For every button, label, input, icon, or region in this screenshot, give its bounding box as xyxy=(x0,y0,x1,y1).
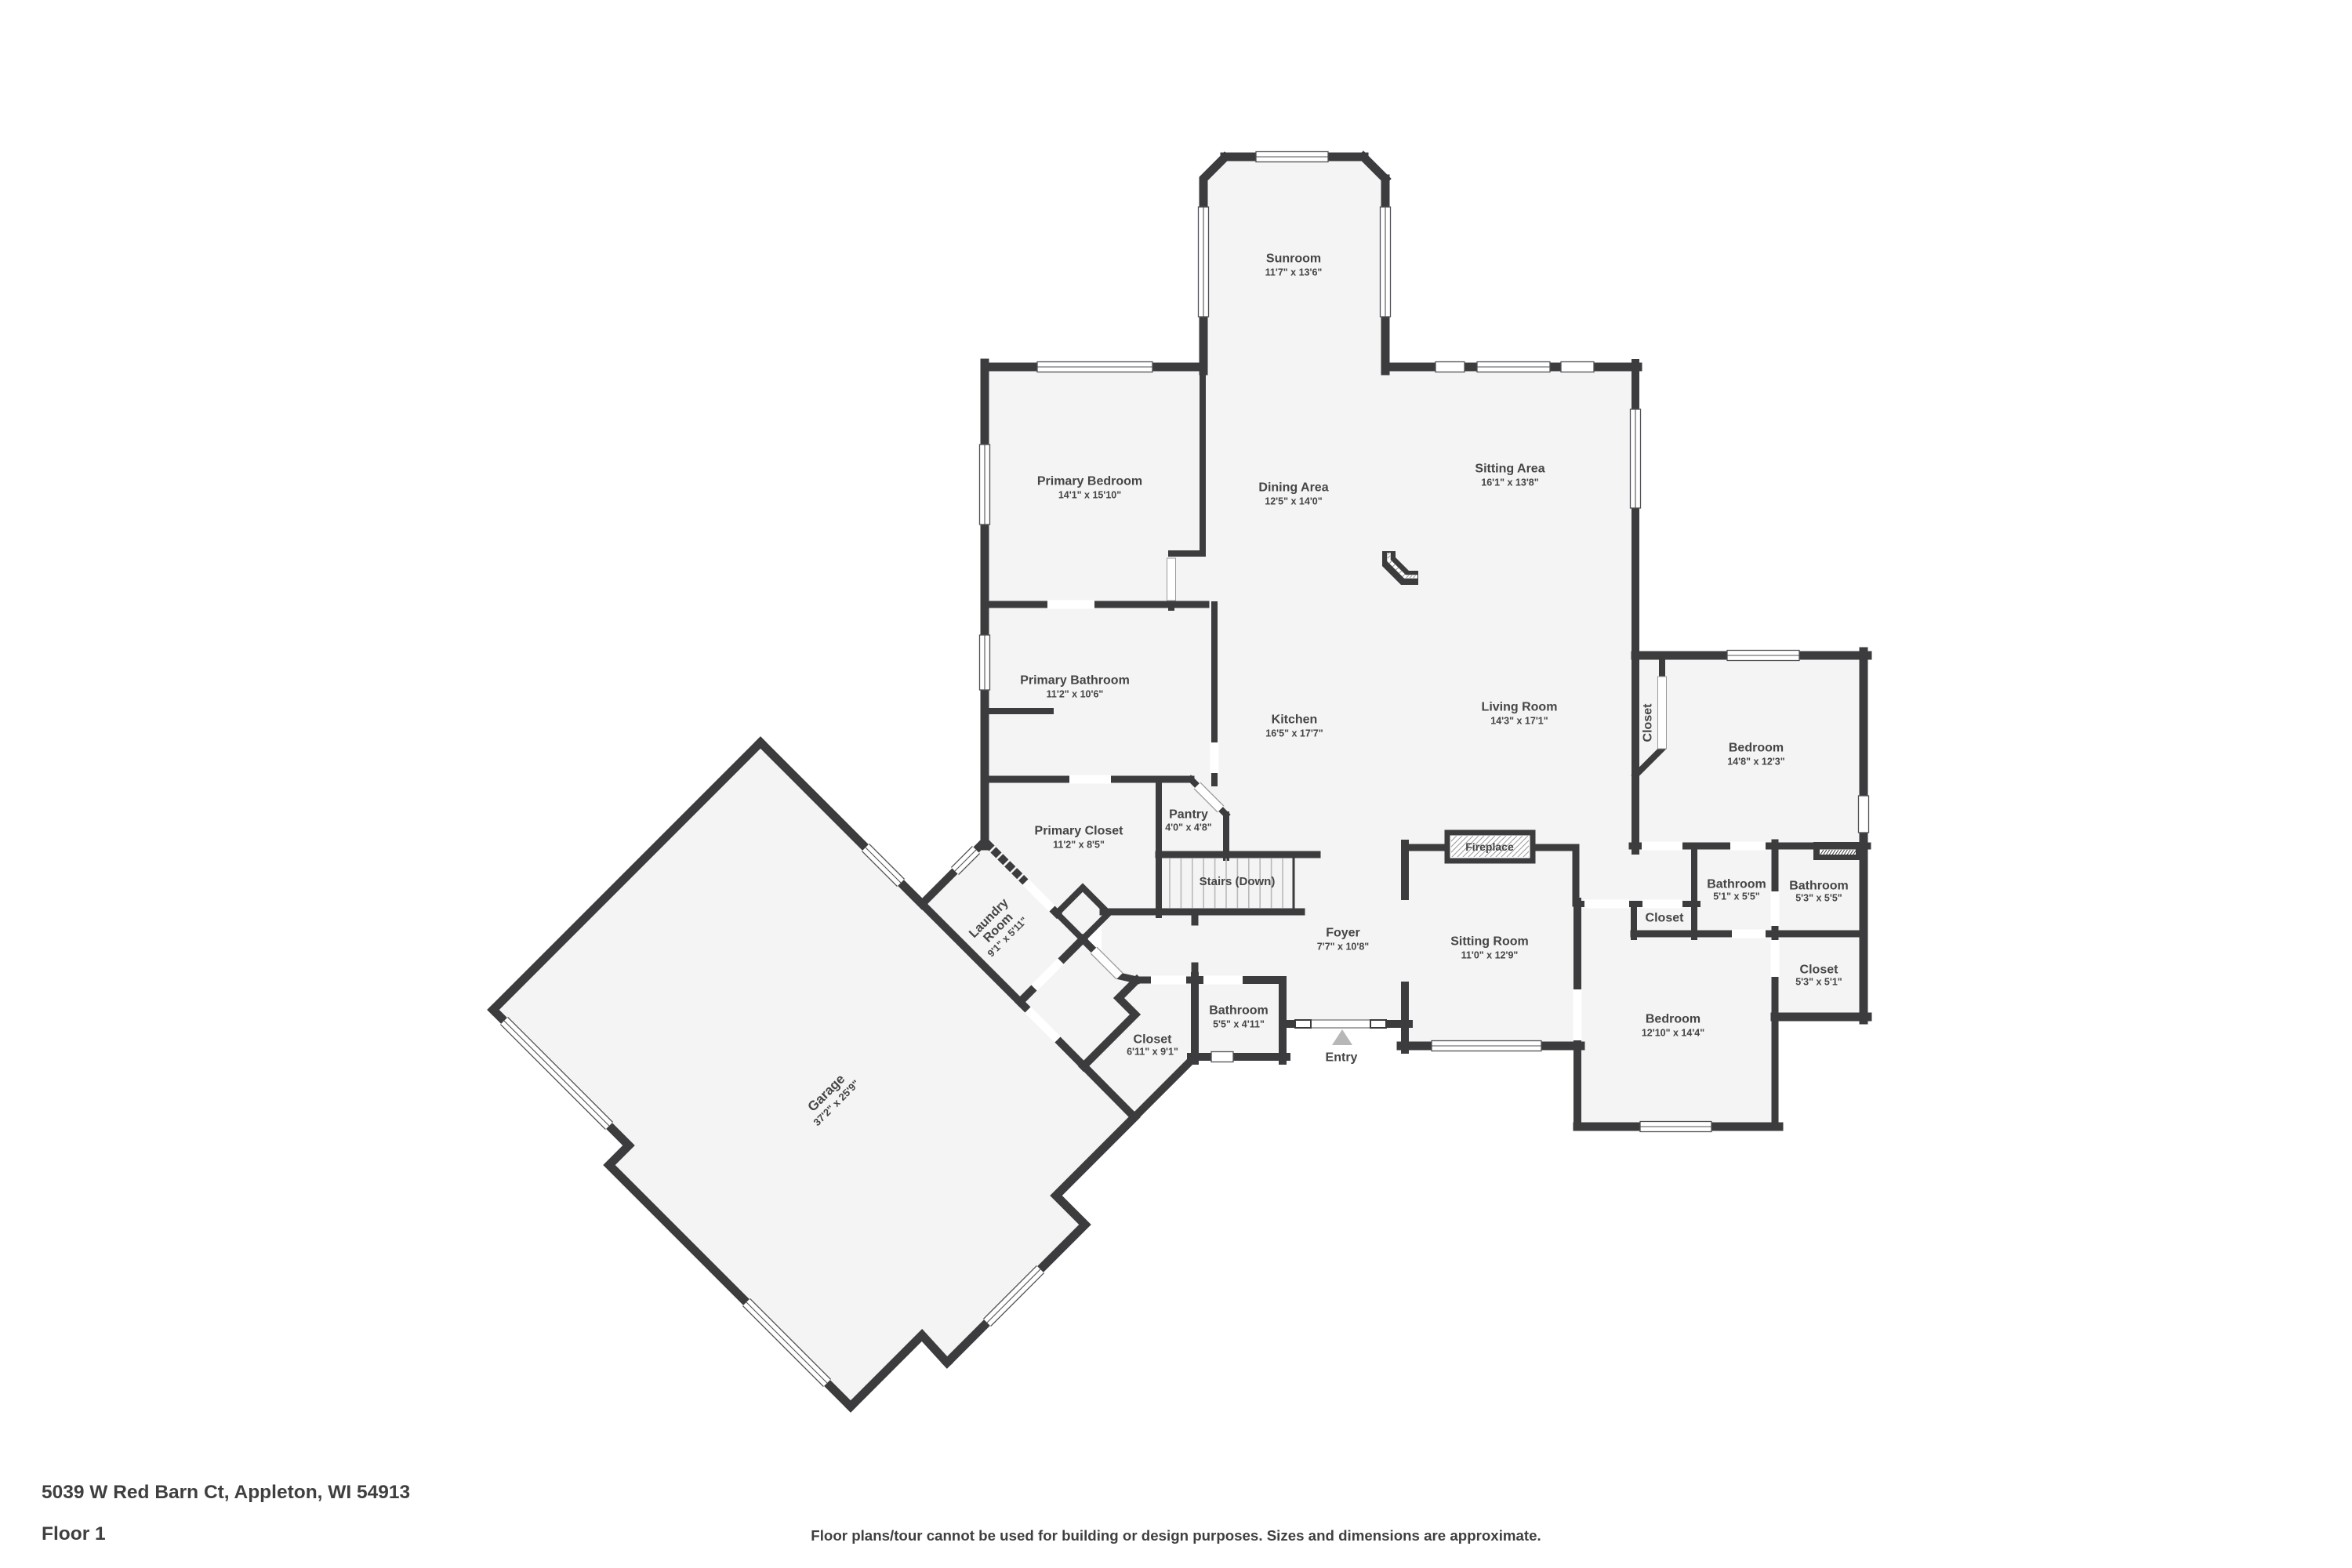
svg-text:12'5" x 14'0": 12'5" x 14'0" xyxy=(1265,495,1322,506)
svg-text:Kitchen: Kitchen xyxy=(1272,713,1318,727)
svg-text:11'7" x 13'6": 11'7" x 13'6" xyxy=(1265,267,1323,278)
svg-text:Bathroom: Bathroom xyxy=(1209,1004,1269,1018)
svg-text:5'3" x 5'1": 5'3" x 5'1" xyxy=(1795,976,1842,987)
svg-text:11'2" x 10'6": 11'2" x 10'6" xyxy=(1047,688,1104,699)
svg-text:5'3" x 5'5": 5'3" x 5'5" xyxy=(1795,892,1842,903)
svg-text:Closet: Closet xyxy=(1646,912,1685,925)
svg-text:5039 W Red Barn Ct, Appleton,: 5039 W Red Barn Ct, Appleton, WI 54913 xyxy=(42,1482,410,1503)
svg-text:Sunroom: Sunroom xyxy=(1266,252,1321,266)
svg-text:Bathroom: Bathroom xyxy=(1707,878,1766,891)
svg-text:Primary Closet: Primary Closet xyxy=(1035,825,1124,838)
svg-text:11'2" x 8'5": 11'2" x 8'5" xyxy=(1053,839,1105,850)
svg-text:16'1" x 13'8": 16'1" x 13'8" xyxy=(1481,477,1538,488)
svg-text:14'1" x 15'10": 14'1" x 15'10" xyxy=(1058,489,1121,500)
svg-text:12'10" x 14'4": 12'10" x 14'4" xyxy=(1642,1027,1704,1038)
svg-text:Bathroom: Bathroom xyxy=(1789,880,1849,893)
svg-text:Sitting Room: Sitting Room xyxy=(1450,935,1529,949)
svg-text:4'0" x 4'8": 4'0" x 4'8" xyxy=(1165,822,1212,833)
svg-text:Sitting Area: Sitting Area xyxy=(1475,463,1544,476)
svg-text:Floor 1: Floor 1 xyxy=(42,1523,106,1544)
svg-text:14'8" x 12'3": 14'8" x 12'3" xyxy=(1727,756,1784,767)
svg-text:Bedroom: Bedroom xyxy=(1729,742,1784,755)
svg-text:Dining Area: Dining Area xyxy=(1258,481,1328,495)
svg-text:Closet: Closet xyxy=(1642,703,1655,742)
svg-text:Primary Bathroom: Primary Bathroom xyxy=(1020,674,1130,688)
svg-text:11'0" x 12'9": 11'0" x 12'9" xyxy=(1461,949,1519,960)
svg-text:Primary Bedroom: Primary Bedroom xyxy=(1037,475,1142,488)
svg-text:Stairs (Down): Stairs (Down) xyxy=(1200,875,1276,888)
svg-text:Pantry: Pantry xyxy=(1169,808,1208,822)
svg-text:7'7" x 10'8": 7'7" x 10'8" xyxy=(1317,941,1370,952)
svg-text:Floor plans/tour cannot be use: Floor plans/tour cannot be used for buil… xyxy=(811,1527,1541,1544)
svg-text:5'5" x 4'11": 5'5" x 4'11" xyxy=(1213,1018,1265,1029)
svg-text:Bedroom: Bedroom xyxy=(1646,1013,1700,1026)
svg-text:Closet: Closet xyxy=(1134,1033,1173,1047)
svg-text:Foyer: Foyer xyxy=(1326,927,1360,940)
svg-text:16'5" x 17'7": 16'5" x 17'7" xyxy=(1265,728,1323,739)
svg-text:6'11" x 9'1": 6'11" x 9'1" xyxy=(1127,1046,1178,1057)
svg-text:Fireplace: Fireplace xyxy=(1465,840,1514,853)
svg-text:Closet: Closet xyxy=(1800,964,1839,977)
svg-text:Entry: Entry xyxy=(1326,1051,1358,1065)
svg-text:14'3" x 17'1": 14'3" x 17'1" xyxy=(1490,715,1548,726)
svg-text:Living Room: Living Room xyxy=(1482,701,1558,714)
svg-text:5'1" x 5'5": 5'1" x 5'5" xyxy=(1713,891,1760,902)
